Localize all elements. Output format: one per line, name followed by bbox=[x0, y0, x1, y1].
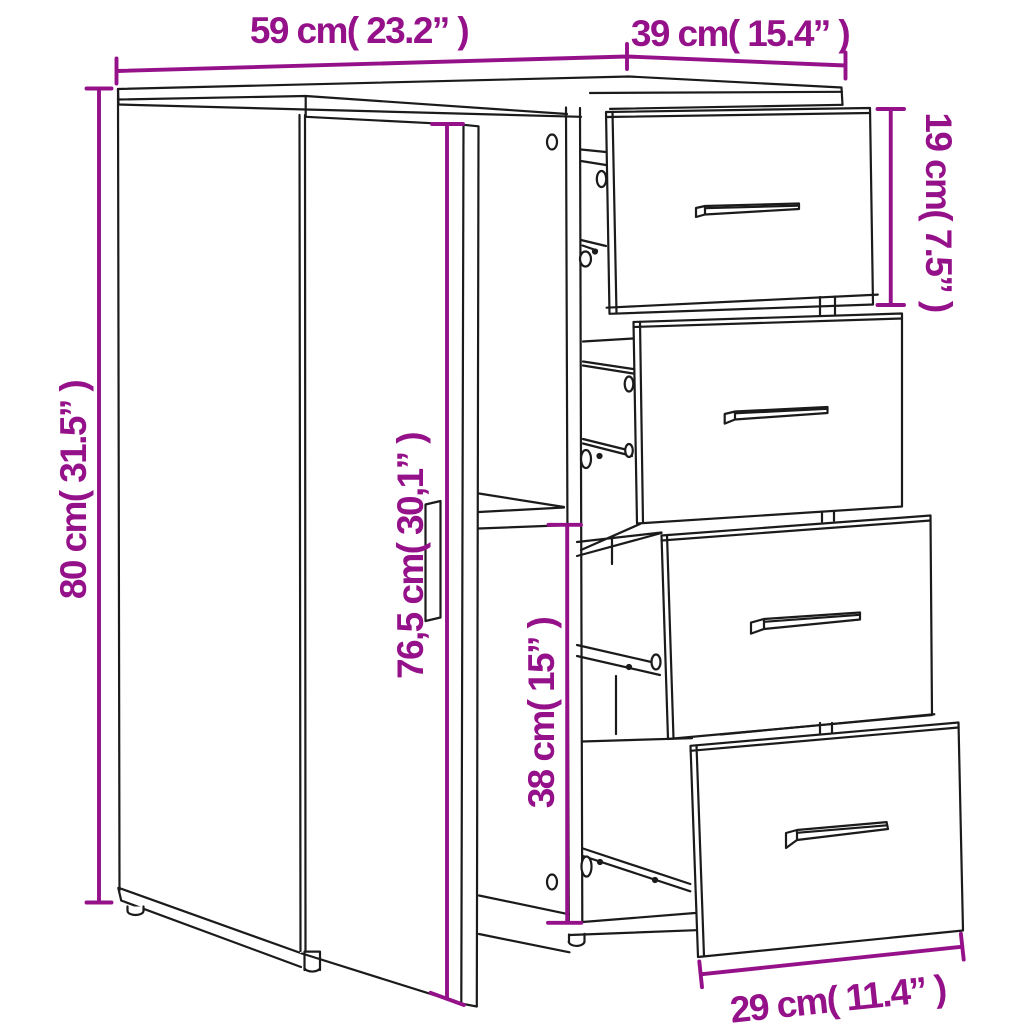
svg-text:29 cm( 11.4” ): 29 cm( 11.4” ) bbox=[728, 967, 948, 1024]
svg-text:59 cm( 23.2” ): 59 cm( 23.2” ) bbox=[250, 10, 469, 51]
svg-text:80 cm( 31.5” ): 80 cm( 31.5” ) bbox=[53, 381, 94, 600]
svg-text:19 cm( 7.5” ): 19 cm( 7.5” ) bbox=[918, 112, 959, 312]
svg-text:38 cm( 15” ): 38 cm( 15” ) bbox=[521, 617, 562, 808]
svg-text:39 cm( 15.4” ): 39 cm( 15.4” ) bbox=[631, 13, 850, 54]
svg-text:76,5 cm( 30,1” ): 76,5 cm( 30,1” ) bbox=[390, 433, 431, 679]
